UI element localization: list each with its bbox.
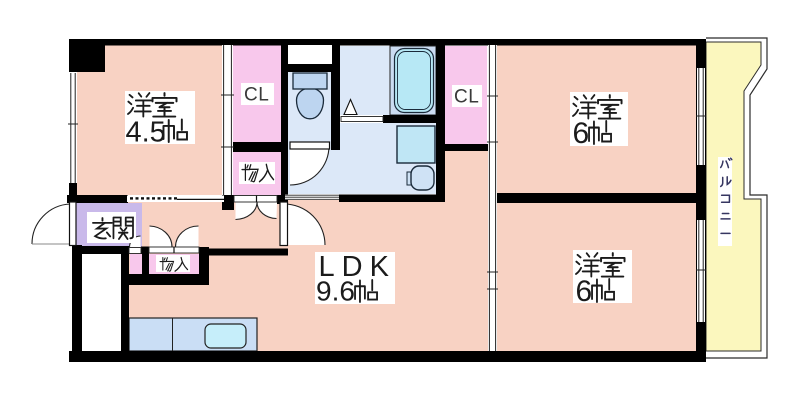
svg-text:CL: CL: [244, 85, 269, 106]
svg-text:6: 6: [576, 275, 593, 308]
svg-text:9.6: 9.6: [316, 276, 355, 307]
svg-text:4.5: 4.5: [126, 117, 166, 149]
svg-text:CL: CL: [454, 87, 479, 108]
svg-text:6: 6: [573, 117, 590, 150]
